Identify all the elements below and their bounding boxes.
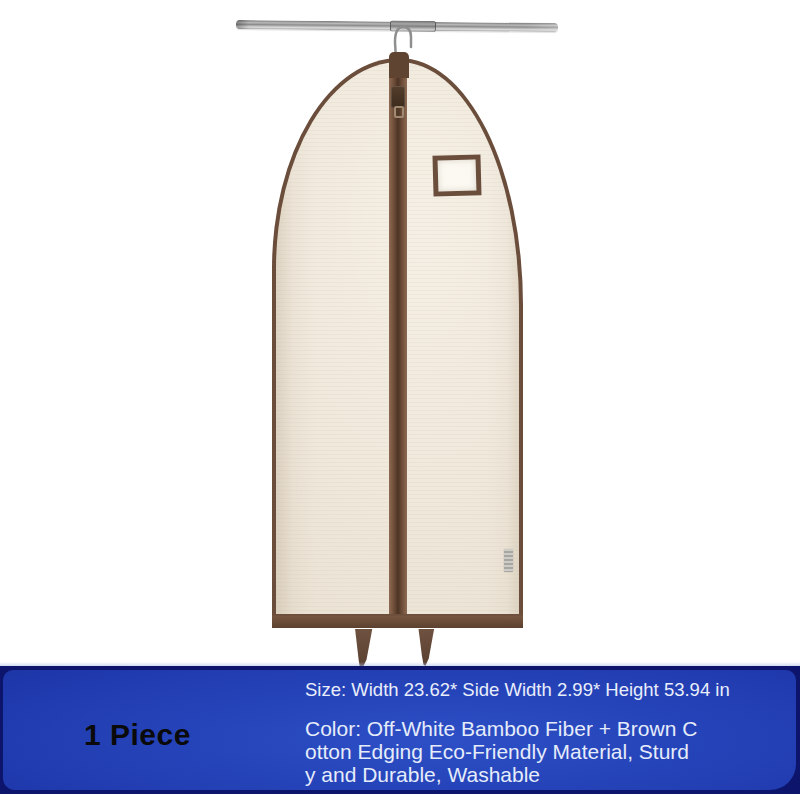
zipper-top-tab xyxy=(389,52,409,78)
color-spec-line: y and Durable, Washable xyxy=(305,763,697,786)
product-photo: 1 Piece Size: Width 23.62* Side Width 2.… xyxy=(0,0,800,800)
bag-bottom-trim xyxy=(272,614,523,628)
zipper-pull-loop xyxy=(394,106,404,118)
size-spec: Size: Width 23.62* Side Width 2.99* Heig… xyxy=(305,679,730,701)
color-spec-line: Color: Off-White Bamboo Fiber + Brown C xyxy=(305,717,697,740)
quantity-label: 1 Piece xyxy=(84,718,191,752)
brand-tag xyxy=(504,549,513,572)
bottom-strap-right xyxy=(417,629,436,666)
color-spec: Color: Off-White Bamboo Fiber + Brown C … xyxy=(305,717,697,786)
info-banner: 1 Piece Size: Width 23.62* Side Width 2.… xyxy=(0,666,800,794)
label-window xyxy=(432,154,481,196)
zipper-strip xyxy=(389,60,407,628)
color-spec-line: otton Edging Eco-Friendly Material, Stur… xyxy=(305,740,697,763)
zipper-pull xyxy=(391,86,405,108)
garment-bag xyxy=(272,58,523,628)
